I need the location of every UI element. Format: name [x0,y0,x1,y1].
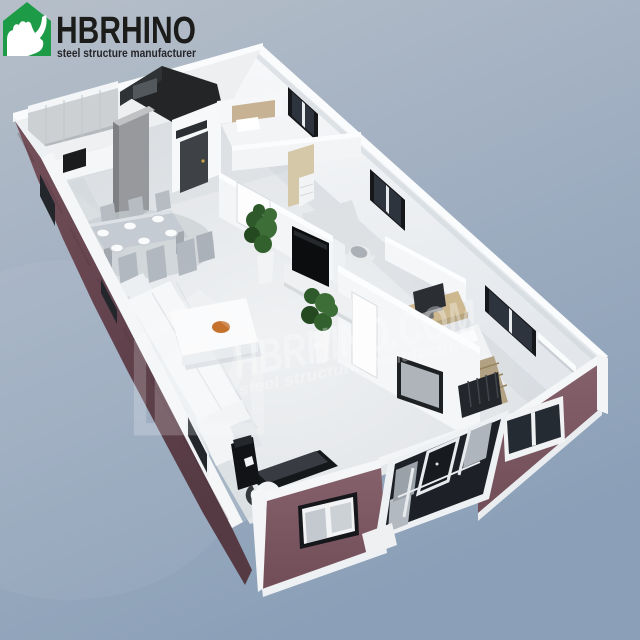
svg-text:HBRHINO: HBRHINO [56,10,196,52]
svg-text:steel structure manufacturer: steel structure manufacturer [57,48,196,60]
